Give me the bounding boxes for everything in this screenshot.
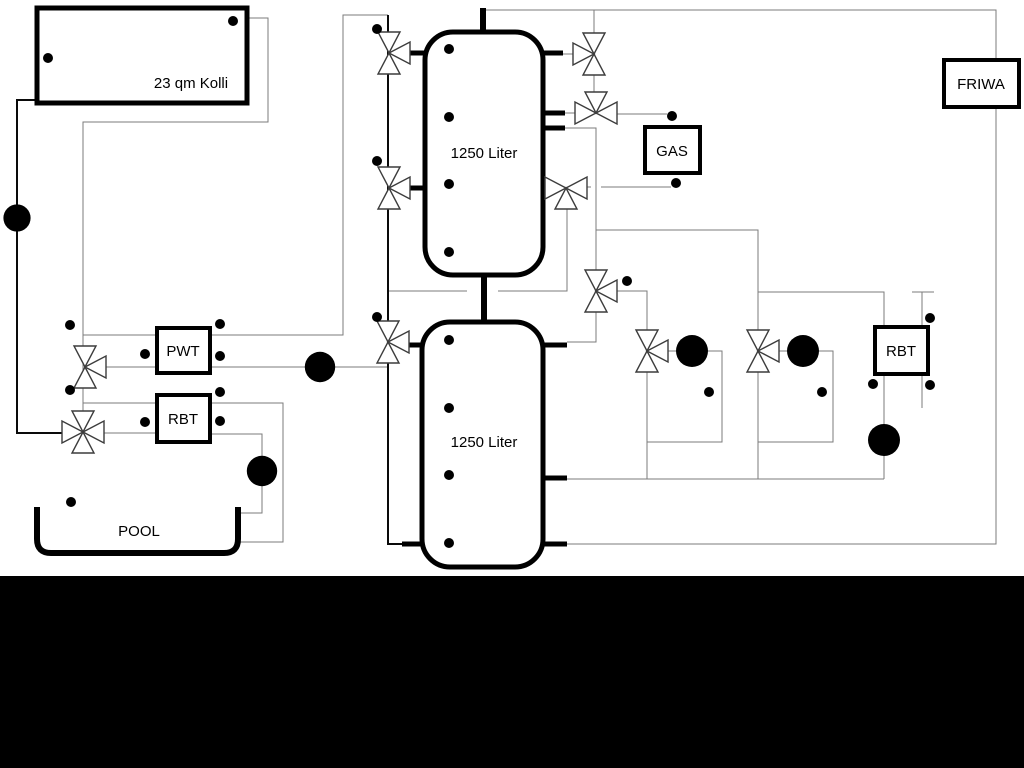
buffer-tank-1-label: 1250 Liter <box>451 145 518 162</box>
rbt-right-label: RBT <box>886 343 916 360</box>
valve-heating-circuit-1-icon <box>636 330 668 372</box>
pipe-heating-header <box>596 230 758 330</box>
friwa-label: FRIWA <box>957 76 1005 93</box>
schematic-page: 23 qm Kolli 1250 Liter 1250 Liter PWT RB… <box>0 0 1024 768</box>
buffer-tank-2-label: 1250 Liter <box>451 434 518 451</box>
valve-pwt-return-icon <box>74 346 106 388</box>
valve-gas-supply-icon <box>575 92 617 124</box>
valve-tank1-bottom-right-icon <box>545 177 587 209</box>
gas-label: GAS <box>656 143 688 160</box>
pool-pump-icon <box>247 456 277 486</box>
solar-pump-icon <box>3 204 30 231</box>
valve-tank2-top-left-icon <box>377 321 409 363</box>
rbt-left-label: RBT <box>168 411 198 428</box>
rbt-pump-icon <box>868 424 900 456</box>
valve-solar-return-icon <box>62 411 104 453</box>
pipe-solar-supply <box>17 100 62 433</box>
pwt-pump-icon <box>305 352 335 382</box>
pipe-solar-riser <box>388 15 403 544</box>
pool-label: POOL <box>118 523 160 540</box>
temperature-sensor-icon <box>704 387 722 397</box>
valve-tank1-mid-left-icon <box>378 167 410 209</box>
solar-collector-label: 23 qm Kolli <box>154 75 228 92</box>
temperature-sensor-icon <box>65 320 83 330</box>
hydraulic-schematic: 23 qm Kolli 1250 Liter 1250 Liter PWT RB… <box>0 0 1024 768</box>
pipe-valve7-tank2 <box>567 312 596 342</box>
valve-heating-circuit-2-icon <box>747 330 779 372</box>
pool-sensor-icon <box>66 497 76 515</box>
temperature-sensor-icon <box>917 313 935 323</box>
valve-tank1-top-left-icon <box>378 32 410 74</box>
temperature-sensor-icon <box>215 416 225 434</box>
pipe-valve7-circuit1 <box>617 291 647 330</box>
temperature-sensor-icon <box>140 349 150 367</box>
valve-tank1-top-right-icon <box>573 33 605 75</box>
pwt-label: PWT <box>166 343 199 360</box>
bottom-black-band <box>0 576 1024 768</box>
temperature-sensor-icon <box>917 380 935 390</box>
valve-heating-feed-icon <box>585 270 617 312</box>
heating-pump-2-icon <box>787 335 819 367</box>
pipe-rbt-right-feed <box>758 292 884 327</box>
heating-pump-1-icon <box>676 335 708 367</box>
